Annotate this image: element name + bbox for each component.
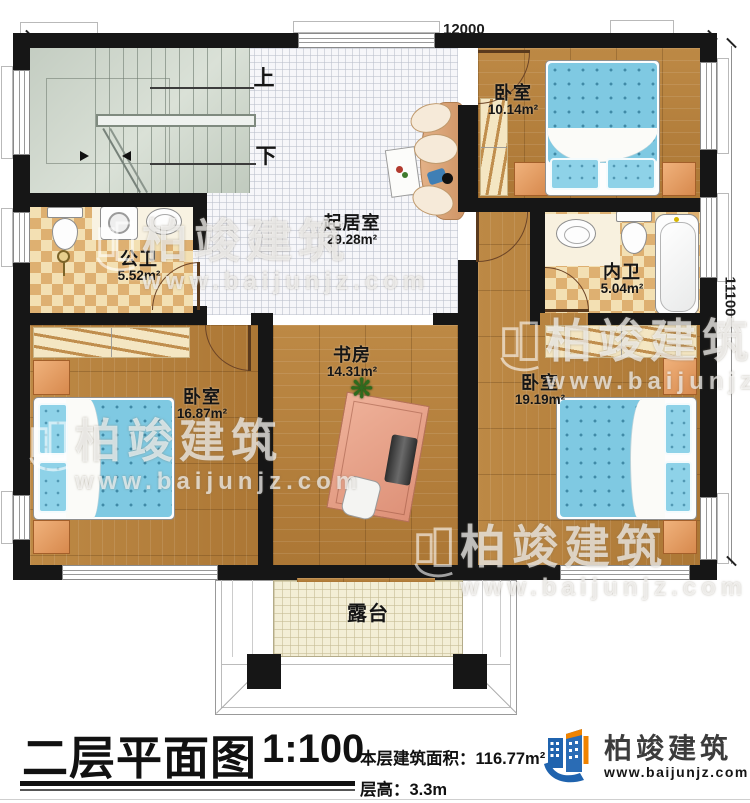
terrace-rail-line	[232, 580, 233, 657]
bathtub-faucet	[674, 217, 679, 222]
company-logo-url: www.baijunjz.com	[604, 764, 749, 780]
wardrobe	[33, 327, 190, 358]
stair-arrow-left	[122, 151, 131, 161]
wall-study-pier	[433, 313, 458, 325]
door-leaf	[545, 309, 589, 312]
sink-basin	[564, 226, 590, 244]
washing-machine-drum	[108, 212, 130, 234]
room-label-bedroom-right: 卧室 19.19m²	[504, 374, 576, 407]
wall-bedroom-study	[258, 313, 273, 565]
wall-bedroom-left-north	[30, 313, 205, 325]
room-label-public-bath: 公卫 5.52m²	[103, 250, 175, 283]
sink-basin	[153, 214, 177, 231]
window-bottom-right	[560, 565, 690, 580]
window-sill	[717, 493, 729, 564]
floor-area-value: 116.77m²	[476, 750, 546, 768]
wall-stair-bath	[30, 193, 207, 207]
floor-area-row: 本层建筑面积：116.77m²	[360, 745, 545, 769]
wall-living-bedroom-right	[458, 260, 478, 565]
window-sill	[717, 58, 729, 154]
bathtub-inner	[660, 222, 696, 312]
window-top	[298, 33, 435, 48]
door-leaf	[197, 262, 200, 310]
nightstand	[33, 520, 70, 554]
window-sill	[1, 66, 13, 159]
page-title: 二层平面图	[22, 722, 257, 788]
stair-down-label: 下	[252, 146, 280, 168]
room-label-living: 起居室 29.28m²	[310, 214, 394, 247]
nightstand	[662, 162, 696, 196]
floor-height-value: 3.3m	[410, 781, 448, 799]
toilet-tank	[47, 207, 83, 218]
terrace-threshold	[297, 578, 435, 582]
terrace-column	[247, 654, 281, 689]
company-logo-icon	[540, 726, 596, 788]
bed-pillow	[550, 158, 600, 190]
sofa-cushion	[414, 134, 458, 164]
window-left-bath	[13, 212, 30, 263]
company-logo-brand: 柏竣建筑	[604, 734, 749, 765]
nightstand	[663, 520, 697, 554]
window-right-bedroom-top	[700, 62, 717, 150]
bed-pillow	[664, 403, 692, 455]
bed-pillow	[664, 461, 692, 513]
stair-up-line	[150, 87, 254, 89]
nightstand	[663, 358, 697, 395]
door-leaf	[248, 325, 251, 371]
nightstand	[514, 162, 548, 196]
stair-arrow-right	[80, 151, 89, 161]
floor-height-row: 层高：3.3m	[360, 776, 447, 800]
nightstand	[33, 360, 70, 395]
stair-down-line	[150, 163, 256, 165]
company-logo: 柏竣建筑 www.baijunjz.com	[540, 726, 749, 788]
window-sill	[1, 208, 13, 267]
title-underline	[20, 781, 355, 786]
window-sill	[1, 491, 13, 544]
floor-area-label: 本层建筑面积：	[360, 750, 476, 768]
wall-bedroom-top-south	[458, 198, 700, 212]
bed-blanket	[66, 399, 101, 518]
terrace-rail-line	[482, 580, 483, 657]
bed-blanket	[630, 399, 665, 518]
table-flower	[402, 172, 408, 178]
floor-height-label: 层高：	[360, 781, 410, 799]
window-bottom-left	[62, 565, 218, 580]
scale-label: 1:100	[262, 727, 364, 772]
person-head	[442, 173, 453, 184]
stair-handrail	[96, 114, 256, 127]
wardrobe	[545, 325, 697, 358]
terrace-rail-line	[252, 580, 253, 657]
window-sill	[293, 21, 440, 33]
room-label-terrace: 露台	[330, 604, 406, 625]
title-underline-thin	[20, 789, 355, 791]
wall-living-bedroom-top	[458, 105, 478, 198]
window-right-bath	[700, 197, 717, 278]
floor-plan-page: 12000 11100 上 下	[0, 0, 750, 803]
room-label-bedroom-top: 卧室 10.14m²	[478, 84, 548, 117]
dimension-right-value: 11100	[722, 267, 739, 327]
room-label-inner-bath: 内卫 5.04m²	[586, 263, 658, 296]
wall-inner-bath-south	[530, 313, 540, 325]
window-right-bedroom	[700, 497, 717, 560]
wall-inner-bath-south	[588, 313, 700, 325]
floor-drain-stem	[63, 262, 65, 276]
bed-pillow	[38, 403, 68, 455]
wall-terrace-left	[218, 565, 297, 580]
bed-pillow	[606, 158, 656, 190]
wall-public-bath-east	[193, 193, 207, 250]
wall-terrace-right	[435, 565, 560, 580]
door-leaf	[478, 50, 530, 53]
window-left-bedroom	[13, 495, 30, 540]
window-left-stairs	[13, 70, 30, 155]
terrace-rail-line	[500, 580, 501, 657]
bed-pillow	[38, 461, 68, 513]
room-label-bedroom-left: 卧室 16.87m²	[166, 388, 238, 421]
stair-up-label: 上	[250, 68, 278, 90]
door-leaf	[476, 212, 479, 262]
terrace-column	[453, 654, 487, 689]
room-label-study: 书房 14.31m²	[316, 346, 388, 379]
wall-inner-bath-west	[530, 212, 545, 313]
toilet-tank	[616, 211, 652, 222]
